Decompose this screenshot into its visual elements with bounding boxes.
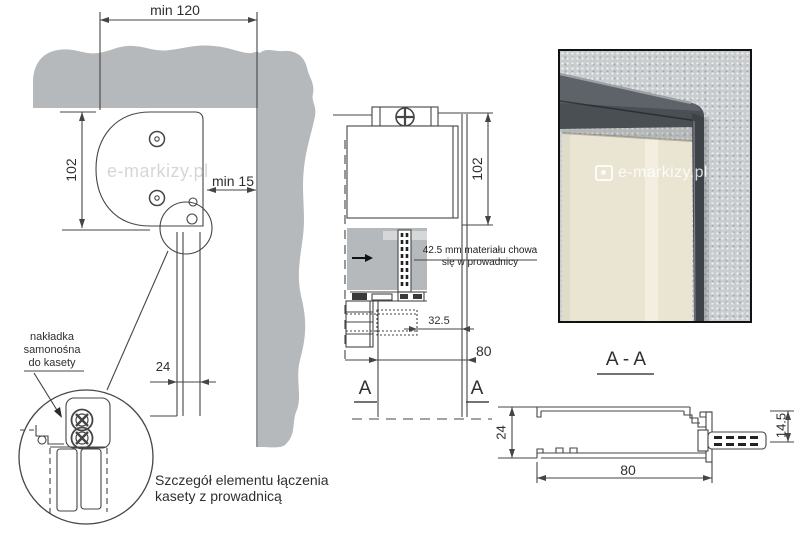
detail-caption-line2: kasety z prowadnicą (155, 488, 329, 504)
fabric-note-line2: się w prowadnicy (420, 257, 540, 269)
dim-label-min-side: min 15 (206, 173, 260, 189)
left-drawing-detail-callout (24, 202, 212, 418)
cover-label-line2: samonośna (8, 344, 96, 357)
drawing-watermark: e-markizy.pl (107, 161, 209, 182)
dim-label-fabric-offset: 32.5 (418, 315, 460, 327)
left-drawing-detail-circle (19, 390, 153, 524)
section-marker-left: A (352, 378, 378, 400)
copyright-icon (595, 165, 613, 181)
dim-label-guide-depth: 24 (150, 359, 176, 374)
dim-label-cassette-height-left: 102 (63, 150, 79, 190)
middle-drawing-guide-section (346, 301, 417, 347)
technical-sheet: min 120 102 min 15 e-markizy.pl nakładka… (0, 0, 800, 533)
middle-drawing-wall-block (347, 228, 427, 301)
section-aa-title: A - A (596, 349, 656, 371)
section-marker-right: A (464, 378, 490, 400)
section-aa-profile (537, 374, 766, 462)
detail-caption: Szczegół elementu łączenia kasety z prow… (155, 472, 329, 504)
photo-watermark-text: e-markizy.pl (618, 164, 708, 182)
detail-caption-line1: Szczegół elementu łączenia (155, 472, 329, 488)
dim-label-connector-height: 14.5 (774, 404, 789, 448)
fabric-note: 42.5 mm materiału chowa się w prowadnicy (420, 245, 540, 269)
left-drawing-guide-rail (150, 232, 216, 416)
product-photo: e-markizy.pl (558, 49, 752, 323)
middle-drawing-dim-80 (345, 357, 476, 363)
photo-watermark: e-markizy.pl (595, 164, 708, 182)
cover-label-line1: nakładka (8, 331, 96, 344)
dim-label-cassette-height-mid: 102 (469, 149, 485, 189)
dim-label-profile-depth: 24 (494, 413, 509, 453)
dim-label-guide-width-mid: 80 (476, 343, 492, 359)
dim-label-min-width: min 120 (130, 2, 220, 18)
fabric-note-line1: 42.5 mm materiału chowa (420, 245, 540, 257)
cover-label: nakładka samonośna do kasety (8, 331, 96, 370)
product-photo-art (560, 51, 750, 321)
dim-label-profile-width: 80 (608, 462, 648, 478)
cover-label-line3: do kasety (8, 357, 96, 370)
